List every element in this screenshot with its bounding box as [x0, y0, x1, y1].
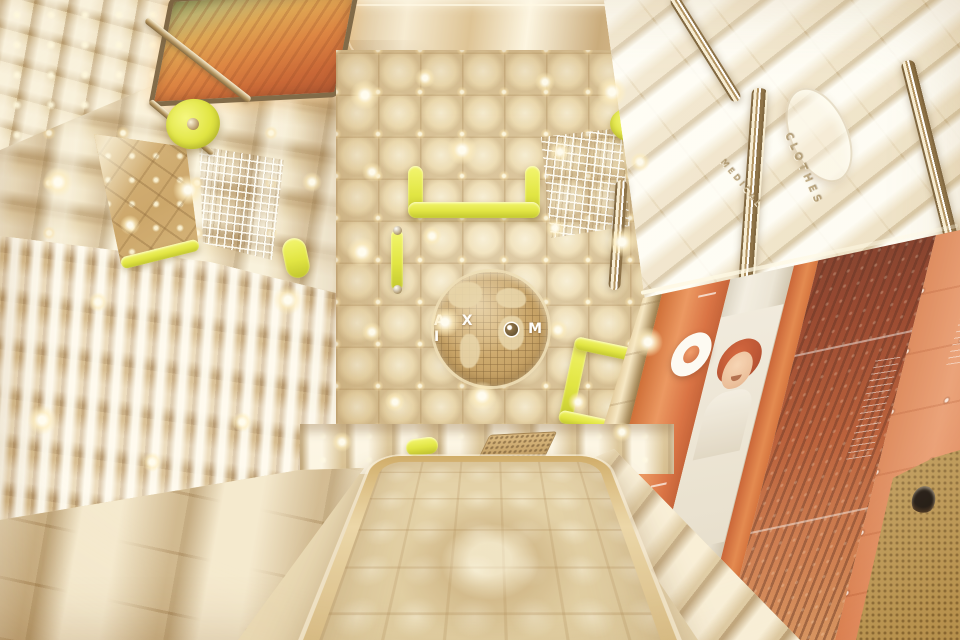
- handle-cap: [393, 285, 402, 294]
- ui-text-line: [698, 292, 716, 298]
- logo-wordmark: A X I M: [434, 319, 548, 339]
- yellow-vertical-handle: [389, 226, 405, 294]
- disc-button: [186, 117, 201, 132]
- panel-seam: [794, 330, 912, 357]
- logo-continent: [448, 282, 482, 308]
- globe-icon: [505, 323, 518, 336]
- panel-seam: [750, 507, 868, 534]
- space-station-module-interior: A X I M CLOTHES MEDICAL: [0, 0, 960, 640]
- person-body: [693, 386, 756, 461]
- ui-text-line: [651, 482, 667, 487]
- logo-text-right: M: [528, 321, 548, 337]
- logo-continent: [496, 288, 526, 308]
- handle-cap: [393, 226, 402, 235]
- handrail-bar: [408, 202, 540, 218]
- logo-text-left: A X I: [434, 313, 500, 345]
- caption-text-lines: [946, 286, 960, 365]
- handle-bar: [391, 230, 403, 290]
- wall-display-desert-view: [148, 0, 360, 107]
- yellow-u-handrail: [408, 166, 540, 218]
- axiom-logo: A X I M: [434, 272, 548, 386]
- avatar-dot: [681, 344, 701, 365]
